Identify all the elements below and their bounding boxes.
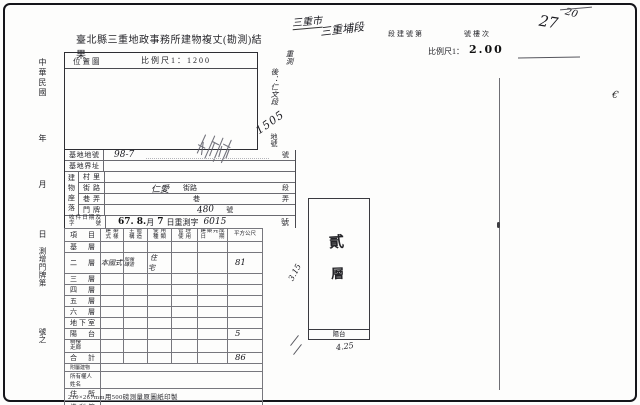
floor-number-label: 號樓次 xyxy=(464,29,491,39)
field-row-village: 村里 xyxy=(79,172,295,183)
margin-year-label: 年 xyxy=(37,134,48,142)
dimension-tick-1 xyxy=(290,335,299,346)
floor2-style-value: 本國式 xyxy=(101,259,122,267)
row-label: 五層 xyxy=(65,296,101,307)
sketch-left-dimension: 3.15 xyxy=(287,263,303,283)
hand-check-mark: € xyxy=(611,90,619,102)
village-label: 村里 xyxy=(83,172,100,182)
street-suffix: 段 xyxy=(282,183,289,193)
hand-city-note: 三重市 xyxy=(291,12,322,31)
building-number-label: 段建號第 xyxy=(388,29,424,39)
row-label: 騎樓走廊 xyxy=(70,340,84,352)
dotted-rule xyxy=(146,158,269,159)
row-label: 陽台 xyxy=(65,329,101,340)
row-label: 四層 xyxy=(65,285,101,296)
hand-underline-mark xyxy=(518,56,580,58)
table-row-owner: 所有權人姓名 xyxy=(65,371,263,388)
table-row-total: 合計 86 xyxy=(65,352,263,363)
table-row-balcony: 陽台 5 xyxy=(65,329,263,340)
scale-200-label: 比例尺1： xyxy=(428,46,464,57)
street-value: 仁愛 xyxy=(151,182,169,195)
sketch-bottom-dimension: 4.25 xyxy=(335,341,354,352)
table-row-basement: 地下室 xyxy=(65,318,263,329)
receipt-doc-number: 6015 xyxy=(203,217,226,227)
hand-building-number: 27 xyxy=(538,12,560,33)
street-print-mid: 街路 xyxy=(183,183,197,193)
boundary-label: 基地界址 xyxy=(69,161,99,171)
balcony-area-value: 5 xyxy=(228,329,240,339)
floor-table-header-row: 項目 建築式樣 主體構造 使用種類 管理使用 建築完成日期 平方公尺 xyxy=(65,229,263,242)
lot-number-label: 地號 xyxy=(269,133,279,147)
header-use-type: 使用種類 xyxy=(153,229,166,241)
doorplate-label: 門牌 xyxy=(83,205,100,215)
margin-day-label: 日 xyxy=(37,230,48,238)
lane-label: 巷弄 xyxy=(83,194,100,204)
header-item: 項目 xyxy=(65,229,101,242)
scanned-survey-form: 臺北縣三重地政事務所建物複丈(勘測)結果 中華民國 年 月 日 測增門牌第 號之… xyxy=(0,0,640,405)
lot-suffix: 號 xyxy=(282,150,289,160)
field-group-situs: 建物座落 村里 街路 仁愛 街路 段 巷弄 xyxy=(65,172,295,216)
balcony-strip: 陽台 xyxy=(309,329,369,339)
fields-block: 基地地號 98-7 號 基地界址 建物座落 村里 街路 xyxy=(64,150,296,228)
floor2-area-value: 81 xyxy=(228,258,246,268)
lane-suffix: 弄 xyxy=(282,194,289,204)
receipt-docword-label: 日重測字 xyxy=(166,217,198,228)
table-row-floor2: 二層 本國式 加強磚造 住宅 81 xyxy=(65,253,263,274)
lot-label: 基地地號 xyxy=(69,150,99,160)
lot-value: 98-7 xyxy=(114,150,134,160)
location-map-header: 位置圖 比例尺1：1200 xyxy=(65,53,257,69)
field-row-street: 街路 仁愛 街路 段 xyxy=(79,183,295,194)
field-row-boundary: 基地界址 xyxy=(65,161,295,172)
resurvey-note-col2: 後：仁文段 xyxy=(269,68,280,106)
row-label: 合計 xyxy=(65,352,101,363)
row-label: 所有權人姓名 xyxy=(70,372,95,388)
table-row-floor1: 基層 xyxy=(65,242,263,253)
resurvey-note-col1: 重測 xyxy=(284,50,295,65)
row-label: 附屬建物 xyxy=(70,364,95,371)
field-row-lane: 巷弄 巷 弄 xyxy=(79,194,295,205)
dimension-tick-2 xyxy=(293,344,302,355)
header-area: 平方公尺 xyxy=(228,232,262,238)
header-structure: 主體構造 xyxy=(129,229,142,241)
receipt-day-stamp: 7 xyxy=(157,217,163,227)
hand-section-note: 三重埔段 xyxy=(319,18,365,39)
field-row-lot: 基地地號 98-7 號 xyxy=(65,150,295,161)
floor-area-table: 項目 建築式樣 主體構造 使用種類 管理使用 建築完成日期 平方公尺 基層 二層… xyxy=(64,228,263,405)
row-label: 六層 xyxy=(65,307,101,318)
margin-number-suffix: 號之 xyxy=(37,328,48,343)
street-label: 街路 xyxy=(83,183,100,193)
margin-era-label: 中華民國 xyxy=(37,58,48,98)
margin-month-label: 月 xyxy=(37,180,48,188)
total-area-value: 86 xyxy=(228,353,246,363)
table-row-accessory: 附屬建物 xyxy=(65,363,263,371)
situs-label: 建物座落 xyxy=(67,174,77,214)
receipt-date-stamp: 67. 8. xyxy=(118,217,146,227)
floor2-use-value: 住宅 xyxy=(148,254,162,272)
row-label: 三層 xyxy=(65,274,101,285)
header-completed: 建築完成日期 xyxy=(201,229,225,241)
scan-crease-blot xyxy=(497,222,500,228)
sketch-floor-char-1: 貳 xyxy=(328,231,344,253)
sketch-floor-char-2: 層 xyxy=(331,263,345,282)
header-style: 建築式樣 xyxy=(106,229,119,241)
floor2-structure-value: 加強磚造 xyxy=(124,258,137,269)
location-map-label: 位置圖 xyxy=(73,56,102,67)
doorplate-value: 480 xyxy=(197,204,215,216)
paper-spec-note: 210×267mm用500磅測量原圖紙印製 xyxy=(68,391,178,401)
building-outline-sketch: 貳 層 陽台 xyxy=(308,198,370,340)
receipt-month-label: 月 xyxy=(146,217,154,228)
field-row-receipt: 收件日期及字號 67. 8. 月 7 日重測字 6015 號 xyxy=(65,216,295,228)
balcony-strip-label: 陽台 xyxy=(333,331,346,338)
receipt-number-suffix: 號 xyxy=(281,217,289,228)
location-map-box: 位置圖 比例尺1：1200 xyxy=(64,52,258,150)
row-label: 基層 xyxy=(65,242,101,253)
field-row-doorplate: 門牌 480 號 xyxy=(79,205,295,216)
scale-200-value: 2.00 xyxy=(469,43,504,56)
lane-print-mid: 巷 xyxy=(193,194,200,204)
row-label: 權利範圍 xyxy=(70,401,95,405)
table-row-floor3: 三層 xyxy=(65,274,263,285)
receipt-label: 收件日期及字號 xyxy=(69,216,101,228)
table-row-arcade: 騎樓走廊 xyxy=(65,340,263,353)
header-management: 管理使用 xyxy=(178,229,191,241)
scan-crease-line xyxy=(499,78,500,390)
row-label: 二層 xyxy=(65,253,101,274)
doorplate-suffix: 號 xyxy=(226,205,233,215)
location-map-scale: 比例尺1：1200 xyxy=(141,55,211,66)
table-row-floor6: 六層 xyxy=(65,307,263,318)
table-row-floor4: 四層 xyxy=(65,285,263,296)
row-label: 地下室 xyxy=(65,318,101,329)
table-row-floor5: 五層 xyxy=(65,296,263,307)
margin-survey-label: 測增門牌第 xyxy=(37,247,48,287)
